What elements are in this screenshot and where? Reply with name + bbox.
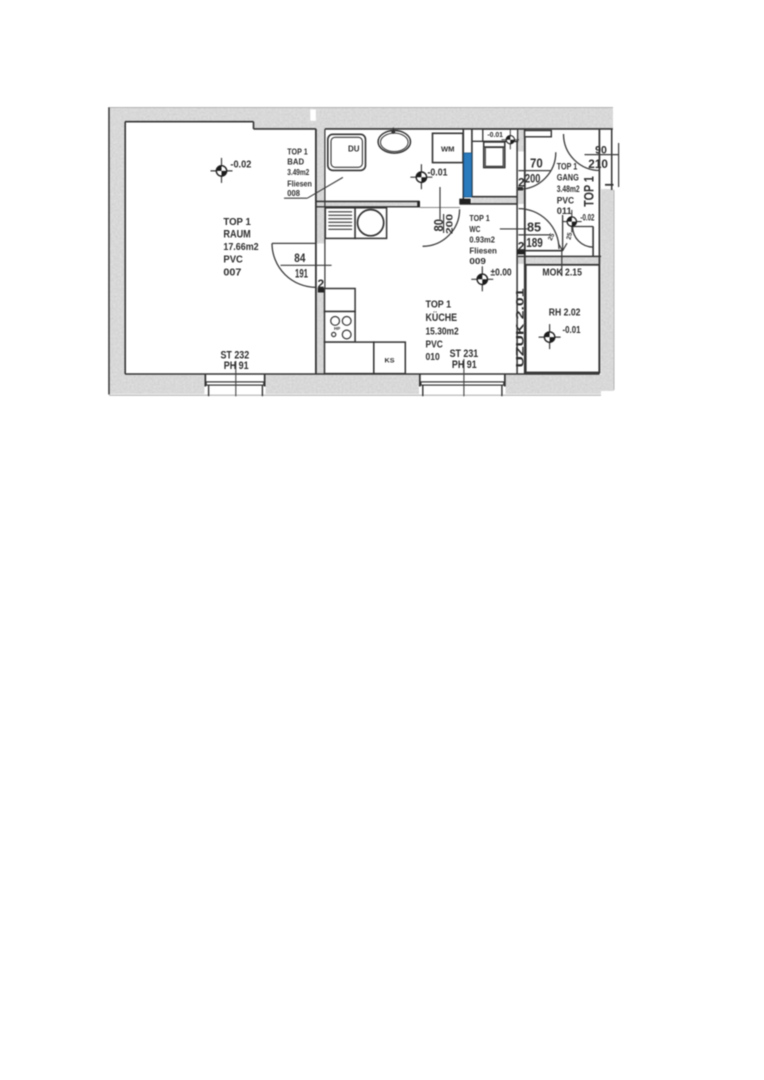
svg-text:3.49m2: 3.49m2: [287, 167, 309, 177]
svg-text:WM: WM: [441, 145, 455, 154]
svg-text:007: 007: [223, 266, 241, 278]
svg-text:0.93m2: 0.93m2: [469, 235, 495, 245]
svg-text:PVC: PVC: [223, 254, 243, 266]
svg-text:15.30m2: 15.30m2: [426, 325, 459, 337]
svg-text:191: 191: [295, 267, 308, 281]
svg-text:PVC: PVC: [557, 195, 575, 205]
svg-text:008: 008: [287, 188, 300, 198]
svg-text:011: 011: [557, 206, 572, 216]
svg-text:009: 009: [469, 256, 486, 266]
svg-text:BAD: BAD: [287, 157, 304, 167]
svg-text:200: 200: [525, 171, 541, 185]
svg-text:UZUK 2.01: UZUK 2.01: [515, 289, 527, 368]
svg-text:KÜCHE: KÜCHE: [426, 311, 458, 324]
svg-text:TOP 1: TOP 1: [582, 176, 597, 207]
svg-text:TOP 1: TOP 1: [223, 216, 251, 228]
svg-text:200: 200: [445, 214, 455, 234]
svg-text:-0.02: -0.02: [230, 158, 251, 170]
svg-text:84: 84: [294, 253, 306, 265]
svg-text:2: 2: [318, 277, 325, 291]
svg-text:TOP 1: TOP 1: [557, 161, 578, 171]
svg-text:17.66m2: 17.66m2: [223, 241, 258, 253]
svg-text:010: 010: [426, 351, 440, 363]
svg-text:DU: DU: [348, 145, 360, 154]
svg-text:PH 91: PH 91: [224, 360, 249, 372]
svg-text:70: 70: [530, 156, 543, 170]
svg-text:±0.00: ±0.00: [491, 266, 512, 278]
svg-text:3.48m2: 3.48m2: [557, 184, 580, 194]
svg-text:TOP 1: TOP 1: [426, 299, 452, 311]
svg-text:90: 90: [595, 144, 607, 156]
svg-text:PH 91: PH 91: [452, 359, 477, 371]
svg-text:TOP 1: TOP 1: [287, 146, 308, 156]
svg-text:210: 210: [588, 157, 608, 171]
svg-text:TOP 1: TOP 1: [469, 213, 490, 223]
svg-text:GANG: GANG: [557, 173, 579, 183]
svg-text:2: 2: [518, 176, 525, 190]
svg-text:2: 2: [518, 240, 525, 254]
svg-text:189: 189: [526, 236, 543, 250]
svg-text:-0.01: -0.01: [563, 324, 581, 336]
svg-text:-0.01: -0.01: [487, 130, 503, 139]
svg-text:-0.02: -0.02: [580, 212, 594, 223]
svg-text:PVC: PVC: [426, 339, 444, 351]
svg-text:Fliesen: Fliesen: [469, 246, 497, 256]
svg-text:WC: WC: [469, 224, 480, 234]
svg-text:KS: KS: [385, 358, 396, 365]
svg-text:MOK 2.15: MOK 2.15: [542, 266, 582, 278]
svg-text:RAUM: RAUM: [223, 228, 250, 240]
svg-text:HP: HP: [334, 326, 340, 331]
svg-text:85: 85: [527, 219, 541, 234]
svg-text:RH 2.02: RH 2.02: [549, 307, 581, 319]
